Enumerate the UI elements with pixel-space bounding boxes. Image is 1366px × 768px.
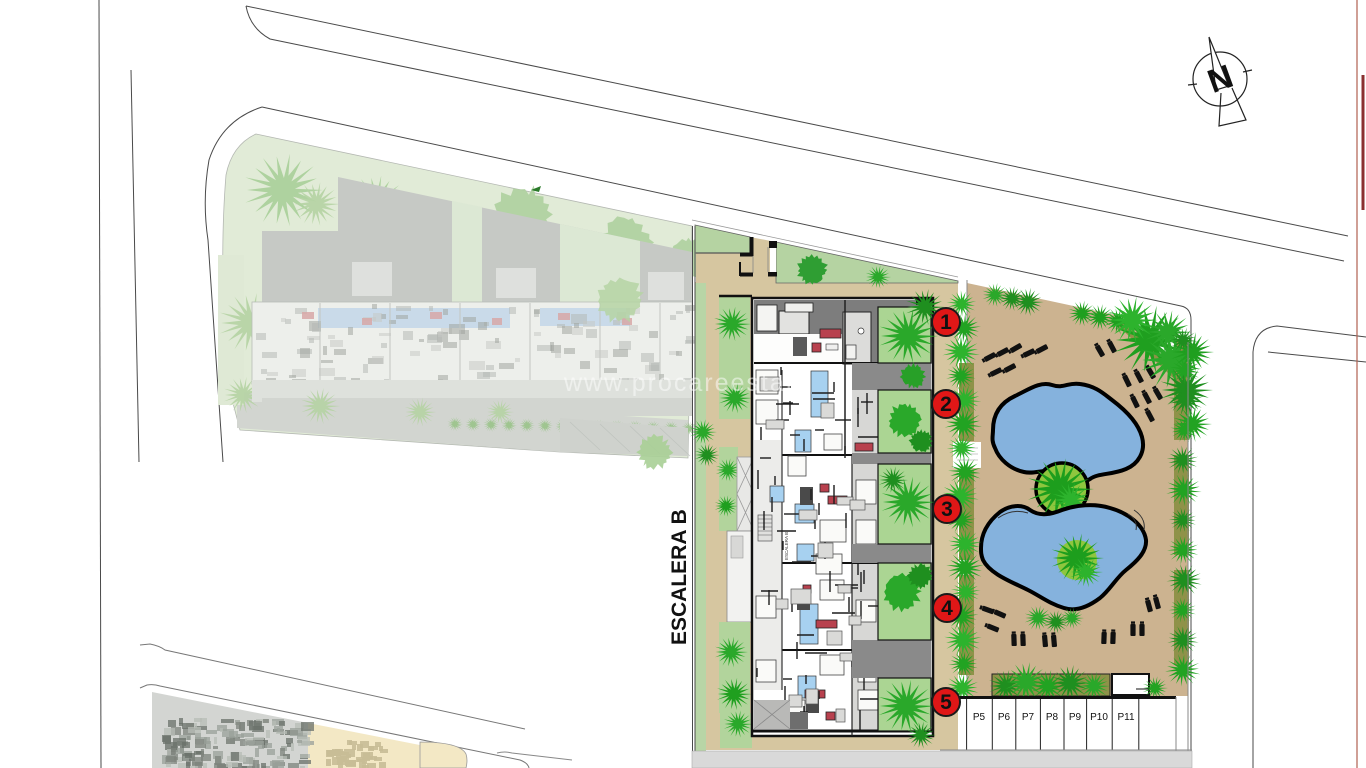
svg-text:P7: P7	[1022, 712, 1035, 723]
svg-text:P11: P11	[1117, 712, 1134, 723]
svg-text:P5: P5	[973, 712, 986, 723]
svg-text:ESCALERA B: ESCALERA B	[784, 532, 789, 560]
svg-text:ESCALERA B: ESCALERA B	[668, 509, 691, 645]
svg-text:1: 1	[940, 311, 952, 334]
svg-text:P9: P9	[1069, 712, 1082, 723]
svg-text:5: 5	[940, 691, 952, 714]
svg-text:2: 2	[940, 393, 952, 416]
svg-text:www.procareestate: www.procareestate	[563, 369, 811, 397]
svg-text:P10: P10	[1090, 712, 1108, 723]
svg-text:3: 3	[941, 498, 953, 521]
svg-text:P8: P8	[1046, 712, 1059, 723]
svg-text:P6: P6	[998, 712, 1011, 723]
svg-text:4: 4	[941, 597, 953, 620]
